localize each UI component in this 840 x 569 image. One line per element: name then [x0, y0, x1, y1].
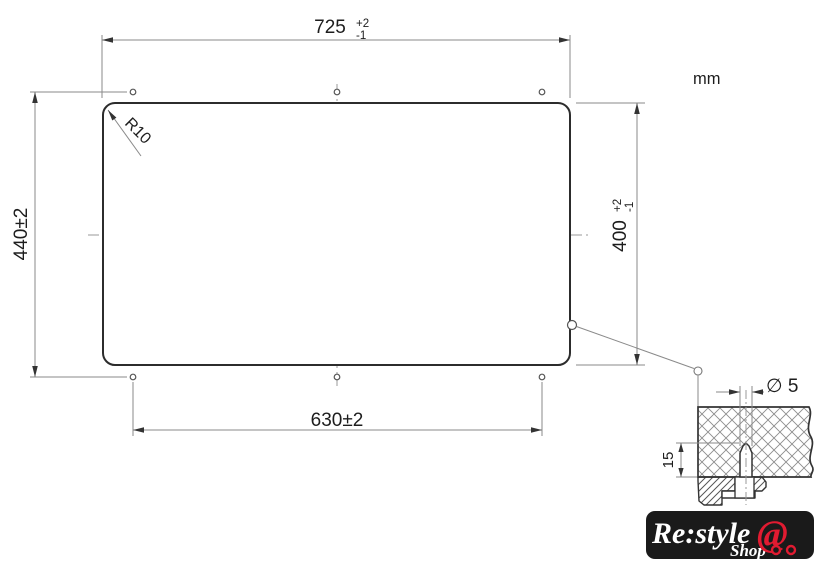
arrowhead [32, 92, 38, 103]
technical-drawing-page: 725 +2 -1 440±2 400 [0, 0, 840, 569]
arrowhead [634, 103, 640, 114]
hole-bottom-center [334, 374, 340, 380]
hole-top-right [539, 89, 545, 95]
hole-depth-label: 15 [660, 452, 677, 469]
hole-diameter-label: ∅ 5 [766, 376, 798, 397]
main-view: 725 +2 -1 440±2 400 [11, 17, 721, 436]
arrowhead [32, 366, 38, 377]
dim-width-tol-minus: -1 [356, 30, 366, 42]
hole-bottom-left [130, 374, 136, 380]
dim-height-value: 400 [610, 220, 631, 252]
worktop-section [698, 407, 813, 477]
arrowhead [729, 389, 740, 395]
dim-height-tol-minus: -1 [624, 202, 636, 212]
arrowhead [559, 37, 570, 43]
diagram-svg: 725 +2 -1 440±2 400 [0, 0, 840, 569]
unit-label: mm [693, 70, 721, 88]
hole-top-left [130, 89, 136, 95]
arrowhead [531, 427, 542, 433]
cart-wheel-icon [772, 546, 780, 554]
arrowhead [678, 443, 683, 452]
dim-hole-span-horizontal-value: 630±2 [311, 410, 364, 431]
brand-logo: Re:style Shop @ [646, 511, 814, 560]
arrowhead [752, 389, 763, 395]
dimension-cutout-width: 725 +2 -1 [102, 17, 570, 98]
leader-end-circle [694, 367, 702, 375]
arrowhead [102, 37, 113, 43]
dimension-cutout-height: 400 +2 -1 [576, 103, 645, 365]
screw-shaft [735, 477, 754, 498]
dim-hole-span-vertical-value: 440±2 [11, 208, 32, 261]
dim-width-tol-plus: +2 [356, 18, 369, 30]
arrowhead [634, 354, 640, 365]
cutout-rectangle [103, 103, 570, 365]
mounting-clip [698, 477, 766, 505]
hole-bottom-right [539, 374, 545, 380]
detail-leader [577, 327, 703, 408]
dim-width-value: 725 [314, 17, 346, 38]
hole-top-center [334, 89, 340, 95]
detail-view: ∅ 5 15 [660, 376, 813, 505]
arrowhead [678, 468, 683, 477]
dim-height-tol-plus: +2 [612, 199, 624, 212]
hole-right-edge [568, 321, 577, 330]
arrowhead [133, 427, 144, 433]
cart-wheel-icon [787, 546, 795, 554]
dimension-hole-span-horizontal: 630±2 [133, 382, 542, 436]
